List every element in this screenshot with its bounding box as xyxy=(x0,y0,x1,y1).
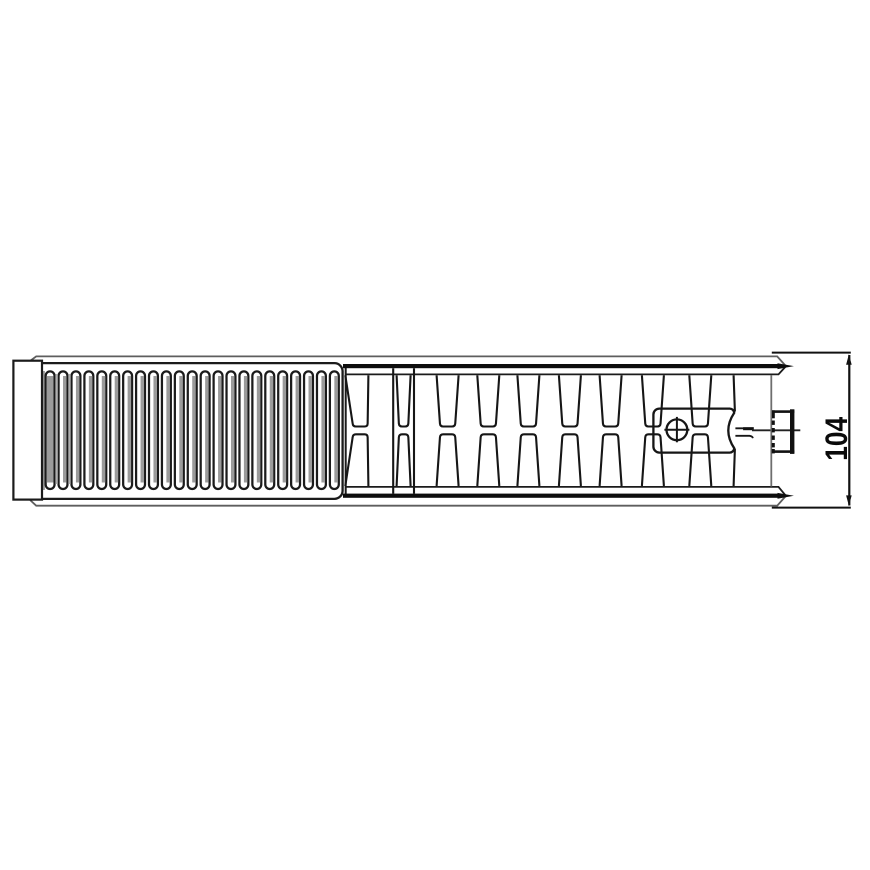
svg-text:104: 104 xyxy=(820,417,855,461)
